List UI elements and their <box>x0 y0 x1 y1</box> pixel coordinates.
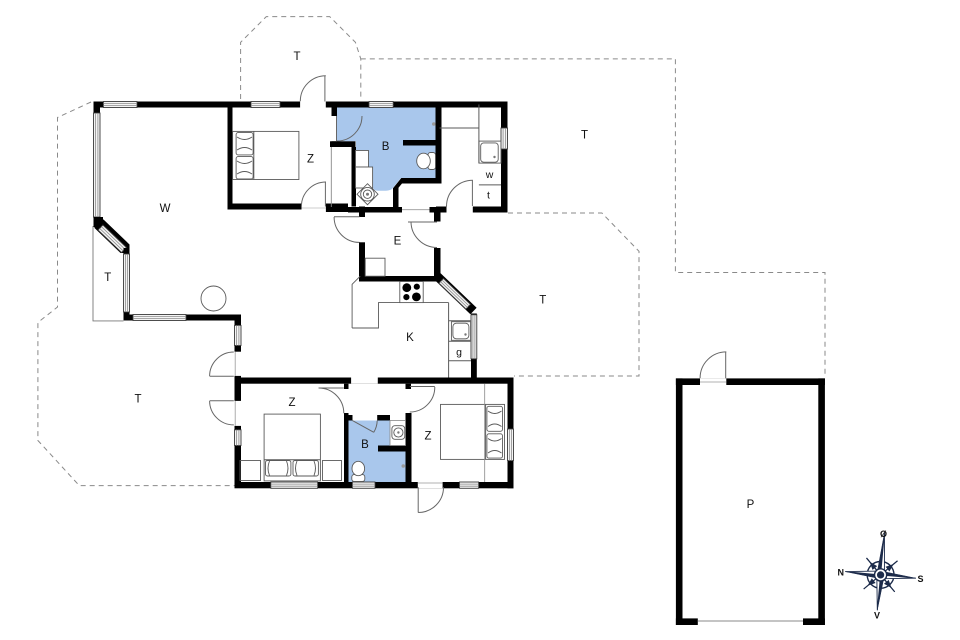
svg-text:N: N <box>838 568 845 578</box>
svg-text:T: T <box>104 272 111 284</box>
svg-text:T: T <box>539 295 546 307</box>
svg-text:g: g <box>456 347 462 359</box>
svg-text:W: W <box>160 203 171 215</box>
svg-text:B: B <box>361 439 369 451</box>
svg-text:E: E <box>394 236 402 248</box>
svg-text:Z: Z <box>307 154 314 166</box>
svg-text:K: K <box>406 332 414 344</box>
svg-text:T: T <box>581 130 588 142</box>
svg-text:t: t <box>487 190 490 202</box>
svg-text:S: S <box>917 574 923 584</box>
svg-text:P: P <box>747 499 755 511</box>
svg-text:T: T <box>134 394 141 406</box>
svg-text:Ø: Ø <box>880 529 887 539</box>
svg-text:w: w <box>485 169 494 181</box>
svg-text:V: V <box>874 611 880 621</box>
svg-text:B: B <box>382 141 390 153</box>
svg-text:Z: Z <box>288 397 295 409</box>
svg-text:Z: Z <box>424 431 431 443</box>
svg-text:T: T <box>293 51 300 63</box>
